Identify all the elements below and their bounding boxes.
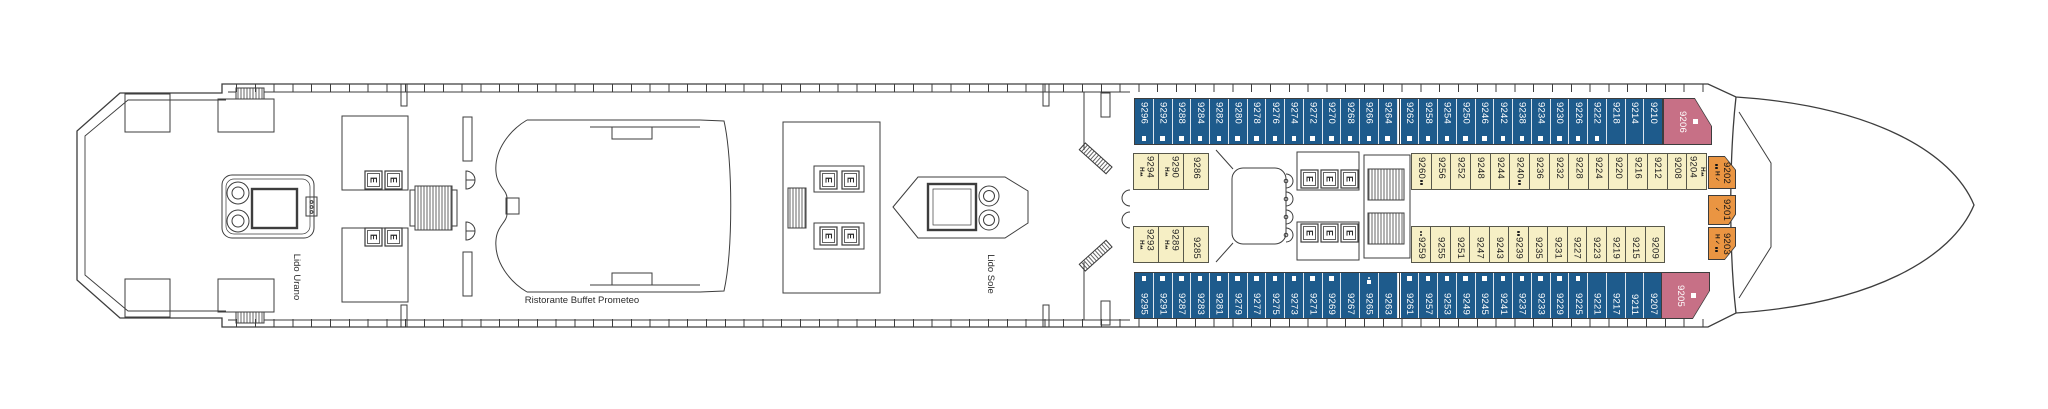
balcony-divider-ticks: [236, 319, 1710, 327]
cabin-number: 9296: [1139, 102, 1149, 124]
cabin-row-bottom-inner-aft: H▴▴9293H▴▴92899285: [1133, 226, 1209, 263]
cabin-9221: 9221: [1588, 273, 1607, 318]
cabin-9219: 9219: [1607, 227, 1626, 262]
cabin-number: 9278: [1252, 102, 1262, 124]
cabin-number: 9287: [1177, 293, 1187, 315]
elevator-icon: E: [1321, 170, 1338, 188]
cabin-9276: 9276: [1266, 99, 1285, 144]
whirlpool: [979, 186, 999, 206]
cabin-number: 9245: [1480, 293, 1490, 315]
cabin-9268: 9268: [1341, 99, 1360, 144]
svg-text:E: E: [1345, 230, 1355, 236]
bow-bulkhead: [1739, 112, 1771, 298]
svg-text:E: E: [389, 177, 399, 183]
svg-text:E: E: [369, 177, 379, 183]
cabin-row-top-inner-fwd: 9260925692529248924492409236923292289224…: [1411, 153, 1707, 190]
cabin-9291: 9291: [1154, 273, 1173, 318]
cabin-number: 9251: [1455, 237, 1465, 259]
cabin-number: 9256: [1436, 157, 1446, 179]
cabin-number: 9234: [1536, 102, 1546, 124]
cabin-number: 9261: [1405, 293, 1415, 315]
pool: [928, 184, 976, 230]
cabin-number: 9285: [1191, 237, 1201, 259]
cabin-number: 9246: [1480, 102, 1490, 124]
cabin-number: 9290: [1170, 156, 1180, 178]
cabin-9228: 9228: [1569, 154, 1589, 189]
cabin-9241: 9241: [1494, 273, 1513, 318]
cabin-number: 9237: [1517, 293, 1527, 315]
cabin-9284: 9284: [1191, 99, 1210, 144]
cabin-9246: 9246: [1476, 99, 1495, 144]
cabin-number: 9227: [1572, 237, 1582, 259]
cabin-number: 9268: [1345, 102, 1355, 124]
cabin-9278: 9278: [1248, 99, 1267, 144]
cabin-number: 9224: [1594, 157, 1604, 179]
cabin-number: 9232: [1554, 157, 1564, 179]
cabin-number: 9210: [1648, 102, 1658, 124]
cabin-number: 9276: [1270, 102, 1280, 124]
cabin-number: 9270: [1327, 102, 1337, 124]
cabin-9233: 9233: [1532, 273, 1551, 318]
cabin-9289: H▴▴9289: [1159, 227, 1184, 262]
cabin-number: 9212: [1653, 157, 1663, 179]
svg-text:E: E: [389, 234, 399, 240]
cabin-9226: 9226: [1569, 99, 1588, 144]
cabin-9230: 9230: [1551, 99, 1570, 144]
svg-text:E: E: [1325, 176, 1335, 182]
cabin-number: 9242: [1498, 102, 1508, 124]
cabin-row-bottom-outer: 9295929192879283928192799277927592739271…: [1134, 272, 1663, 319]
svg-text:E: E: [824, 233, 834, 239]
cabin-number: 9274: [1289, 102, 1299, 124]
cabin-9271: 9271: [1304, 273, 1323, 318]
cabin-number: 9253: [1442, 293, 1452, 315]
elevator-icon: E: [1341, 170, 1358, 188]
cabin-9281: 9281: [1210, 273, 1229, 318]
cabin-9265: 9265: [1360, 273, 1379, 318]
deck-plan: Lido Urano Ristorante Buffet Prometeo: [0, 0, 2048, 409]
cabin-9245: 9245: [1476, 273, 1495, 318]
stairs-aft-lobby: [415, 186, 452, 230]
cabin-number: 9241: [1498, 293, 1508, 315]
cabin-9225: 9225: [1569, 273, 1588, 318]
cabin-9208: 9208: [1668, 154, 1688, 189]
cabin-number: 9205: [1676, 285, 1686, 307]
cabin-9293: H▴▴9293: [1134, 227, 1159, 262]
elevator-icon: E: [1301, 224, 1318, 242]
elevator-icon: E: [1341, 224, 1358, 242]
cabin-number: 9239: [1514, 237, 1524, 259]
cabin-9214: 9214: [1626, 99, 1645, 144]
cabin-9275: 9275: [1266, 273, 1285, 318]
lido-sole-pool: [893, 177, 1028, 238]
cabin-number: 9248: [1476, 157, 1486, 179]
cabin-9282: 9282: [1210, 99, 1229, 144]
cabin-number: 9295: [1139, 293, 1149, 315]
elevator-icon: E: [385, 228, 402, 246]
cabin-number: 9271: [1308, 293, 1318, 315]
cabin-9256: 9256: [1432, 154, 1452, 189]
cabin-9262: 9262: [1401, 99, 1420, 144]
cabin-9272: 9272: [1304, 99, 1323, 144]
cabin-number: 9207: [1648, 293, 1658, 315]
cabin-number: 9202: [1722, 162, 1732, 184]
cabin-9229: 9229: [1551, 273, 1570, 318]
cabin-9227: 9227: [1568, 227, 1587, 262]
forward-structures: [1079, 92, 1130, 325]
cabin-9273: 9273: [1285, 273, 1304, 318]
elevator-boxes: EEEEEEEEEEEEEE: [365, 170, 1358, 246]
cabin-9251: 9251: [1451, 227, 1470, 262]
cabin-9285: 9285: [1184, 227, 1208, 262]
cabin-number: 9230: [1555, 102, 1565, 124]
cabin-9206: 9206: [1663, 98, 1712, 145]
cabin-number: 9292: [1158, 102, 1168, 124]
cabin-number: 9258: [1423, 102, 1433, 124]
cabin-number: 9220: [1613, 157, 1623, 179]
lido-urano-pool: [222, 175, 317, 238]
cabin-9295: 9295: [1135, 273, 1154, 318]
cabin-9201: ✓9201: [1708, 195, 1736, 225]
cabin-number: 9244: [1495, 157, 1505, 179]
cabin-9257: 9257: [1419, 273, 1438, 318]
cabin-number: 9284: [1195, 102, 1205, 124]
cabin-9254: 9254: [1438, 99, 1457, 144]
buffet-label: Ristorante Buffet Prometeo: [525, 295, 639, 306]
cabin-number: 9229: [1555, 293, 1565, 315]
elevator-icon: E: [820, 171, 837, 189]
elevator-icon: E: [385, 171, 402, 189]
hull-inner-lines: [85, 92, 1130, 320]
cabin-9280: 9280: [1229, 99, 1248, 144]
elevator-icon: E: [1321, 224, 1338, 242]
cabin-row-top-inner-aft: H▴▴9294H▴▴92909286: [1133, 153, 1209, 190]
cabin-number: 9214: [1630, 102, 1640, 124]
cabin-9249: 9249: [1457, 273, 1476, 318]
cabin-number: 9215: [1631, 237, 1641, 259]
cabin-9242: 9242: [1494, 99, 1513, 144]
whirlpool: [979, 210, 999, 230]
launderette: [1232, 168, 1286, 244]
cabin-number: 9255: [1436, 237, 1446, 259]
cabin-number: 9236: [1535, 157, 1545, 179]
cabin-9238: 9238: [1513, 99, 1532, 144]
elevator-icon: E: [1301, 170, 1318, 188]
cabin-9294: H▴▴9294: [1134, 154, 1159, 189]
svg-text:E: E: [1345, 176, 1355, 182]
cabin-9283: 9283: [1191, 273, 1210, 318]
cabin-number: 9279: [1233, 293, 1243, 315]
cabin-9292: 9292: [1154, 99, 1173, 144]
cabin-number: 9228: [1574, 157, 1584, 179]
svg-text:E: E: [846, 177, 856, 183]
cabin-9264: 9264: [1379, 99, 1398, 144]
cabin-number: 9293: [1145, 229, 1155, 251]
cabin-number: 9223: [1592, 237, 1602, 259]
cabin-9290: H▴▴9290: [1159, 154, 1184, 189]
cabin-number: 9211: [1630, 294, 1640, 315]
cabin-number: 9231: [1553, 237, 1563, 259]
cabin-number: 9203: [1722, 233, 1732, 255]
svg-text:E: E: [1325, 230, 1335, 236]
cabin-number: 9252: [1456, 157, 1466, 179]
ship-outline: Lido Urano Ristorante Buffet Prometeo: [0, 0, 2048, 409]
cabin-number: 9204: [1688, 156, 1698, 178]
cabin-9215: 9215: [1626, 227, 1645, 262]
elevator-icon: E: [842, 171, 859, 189]
cabin-number: 9217: [1611, 293, 1621, 315]
whirlpool: [227, 182, 249, 204]
pool: [252, 189, 297, 228]
cabin-9248: 9248: [1471, 154, 1491, 189]
cabin-number: 9225: [1573, 293, 1583, 315]
cabin-9244: 9244: [1491, 154, 1511, 189]
cabin-number: 9272: [1308, 102, 1318, 124]
stairs-midship: [788, 188, 806, 228]
cabin-9266: 9266: [1360, 99, 1379, 144]
cabin-9216: 9216: [1628, 154, 1648, 189]
cabin-number: 9265: [1364, 293, 1374, 315]
cabin-9220: 9220: [1609, 154, 1629, 189]
cabin-number: 9264: [1383, 102, 1393, 124]
cabin-9205: 9205: [1661, 272, 1710, 319]
cabin-number: 9218: [1611, 102, 1621, 124]
cabin-number: 9286: [1191, 157, 1201, 179]
svg-text:E: E: [1305, 230, 1315, 236]
cabin-9255: 9255: [1431, 227, 1450, 262]
svg-text:E: E: [824, 177, 834, 183]
elevator-icon: E: [365, 171, 382, 189]
cabin-9279: 9279: [1229, 273, 1248, 318]
cabin-9253: 9253: [1438, 273, 1457, 318]
cabin-number: 9262: [1405, 102, 1415, 124]
cabin-9296: 9296: [1135, 99, 1154, 144]
balcony-divider-ticks: [236, 84, 1710, 92]
cabin-9258: 9258: [1419, 99, 1438, 144]
buffet-station: [466, 171, 475, 189]
svg-text:E: E: [369, 234, 379, 240]
cabin-9260: 9260: [1412, 154, 1432, 189]
cabin-9235: 9235: [1529, 227, 1548, 262]
svg-text:E: E: [1305, 176, 1315, 182]
cabin-number: 9263: [1383, 293, 1393, 315]
cabin-9222: 9222: [1588, 99, 1607, 144]
cabin-number: 9275: [1270, 293, 1280, 315]
cabin-number: 9281: [1214, 293, 1224, 315]
cabin-9270: 9270: [1323, 99, 1342, 144]
center-facilities: [1216, 150, 1410, 262]
cabin-9239: 9239: [1509, 227, 1528, 262]
cabin-9223: 9223: [1587, 227, 1606, 262]
cabin-9240: 9240: [1510, 154, 1530, 189]
cabin-9236: 9236: [1530, 154, 1550, 189]
cabin-number: 9254: [1442, 102, 1452, 124]
lido-urano-label: Lido Urano: [291, 254, 302, 300]
cabin-number: 9209: [1650, 237, 1660, 259]
cabin-9203: H✓9203: [1708, 227, 1736, 260]
cabin-9263: 9263: [1379, 273, 1398, 318]
cabin-number: 9219: [1611, 237, 1621, 259]
cabin-number: 9266: [1364, 102, 1374, 124]
cabin-9243: 9243: [1490, 227, 1509, 262]
cabin-number: 9291: [1158, 293, 1168, 315]
midship-deckhouse: [783, 84, 1049, 327]
cabin-number: 9259: [1416, 237, 1426, 259]
cabin-9234: 9234: [1532, 99, 1551, 144]
cabin-9274: 9274: [1285, 99, 1304, 144]
buffet-station: [466, 222, 475, 240]
cabin-9267: 9267: [1341, 273, 1360, 318]
cabin-number: 9235: [1533, 237, 1543, 259]
cabin-number: 9249: [1461, 293, 1471, 315]
stairs-forward: [1368, 169, 1404, 200]
cabin-9288: 9288: [1173, 99, 1192, 144]
cabin-9250: 9250: [1457, 99, 1476, 144]
lido-sole-label: Lido Sole: [985, 254, 996, 294]
elevator-icon: E: [365, 228, 382, 246]
cabin-9202: H✓9202: [1708, 156, 1736, 189]
svg-text:E: E: [846, 233, 856, 239]
cabin-number: 9216: [1633, 157, 1643, 179]
cabin-9252: 9252: [1451, 154, 1471, 189]
buffet-room: [496, 120, 731, 292]
cabin-number: 9257: [1423, 293, 1433, 315]
cabin-9231: 9231: [1548, 227, 1567, 262]
cabin-9287: 9287: [1173, 273, 1192, 318]
cabin-number: 9222: [1592, 102, 1602, 124]
cabin-row-top-outer: 9296929292889284928292809278927692749272…: [1134, 98, 1663, 145]
cabin-number: 9201: [1721, 199, 1731, 221]
cabin-number: 9288: [1177, 102, 1187, 124]
elevator-icon: E: [842, 227, 859, 245]
cabin-number: 9238: [1517, 102, 1527, 124]
cabin-9261: 9261: [1401, 273, 1420, 318]
cabin-9210: 9210: [1644, 99, 1662, 144]
cabin-number: 9233: [1536, 293, 1546, 315]
cabin-9218: 9218: [1607, 99, 1626, 144]
cabin-number: 9273: [1289, 293, 1299, 315]
cabin-number: 9277: [1252, 293, 1262, 315]
cabin-number: 9226: [1573, 102, 1583, 124]
cabin-9232: 9232: [1550, 154, 1570, 189]
cabin-number: 9243: [1494, 237, 1504, 259]
cabin-number: 9280: [1233, 102, 1243, 124]
cabin-9209: 9209: [1646, 227, 1664, 262]
cabin-9277: 9277: [1248, 273, 1267, 318]
stairs-forward: [1368, 213, 1404, 244]
whirlpool: [227, 210, 249, 232]
cabin-number: 9221: [1592, 293, 1602, 315]
cabin-9259: 9259: [1412, 227, 1431, 262]
cabin-number: 9267: [1345, 293, 1355, 315]
cabin-number: 9206: [1678, 111, 1688, 133]
cabin-number: 9260: [1417, 157, 1427, 179]
cabin-9237: 9237: [1513, 273, 1532, 318]
cabin-row-bottom-inner-fwd: 9259925592519247924392399235923192279223…: [1411, 226, 1665, 263]
cabin-9212: 9212: [1648, 154, 1668, 189]
cabin-number: 9282: [1214, 102, 1224, 124]
cabin-number: 9240: [1515, 157, 1525, 179]
cabin-9286: 9286: [1184, 154, 1208, 189]
cabin-9204: 9204H▴▴: [1687, 154, 1706, 189]
cabin-number: 9250: [1461, 102, 1471, 124]
cabin-9207: 9207: [1644, 273, 1662, 318]
cabin-9217: 9217: [1607, 273, 1626, 318]
cabin-number: 9294: [1145, 156, 1155, 178]
cabin-number: 9289: [1170, 229, 1180, 251]
elevator-icon: E: [820, 227, 837, 245]
cabin-number: 9247: [1475, 237, 1485, 259]
cabin-number: 9283: [1195, 293, 1205, 315]
cabin-number: 9208: [1672, 157, 1682, 179]
cabin-9211: 9211: [1626, 273, 1645, 318]
aft-deckhouse: [342, 84, 475, 327]
cabin-9247: 9247: [1470, 227, 1489, 262]
cabin-9224: 9224: [1589, 154, 1609, 189]
cabin-9269: 9269: [1323, 273, 1342, 318]
cabin-number: 9269: [1327, 293, 1337, 315]
